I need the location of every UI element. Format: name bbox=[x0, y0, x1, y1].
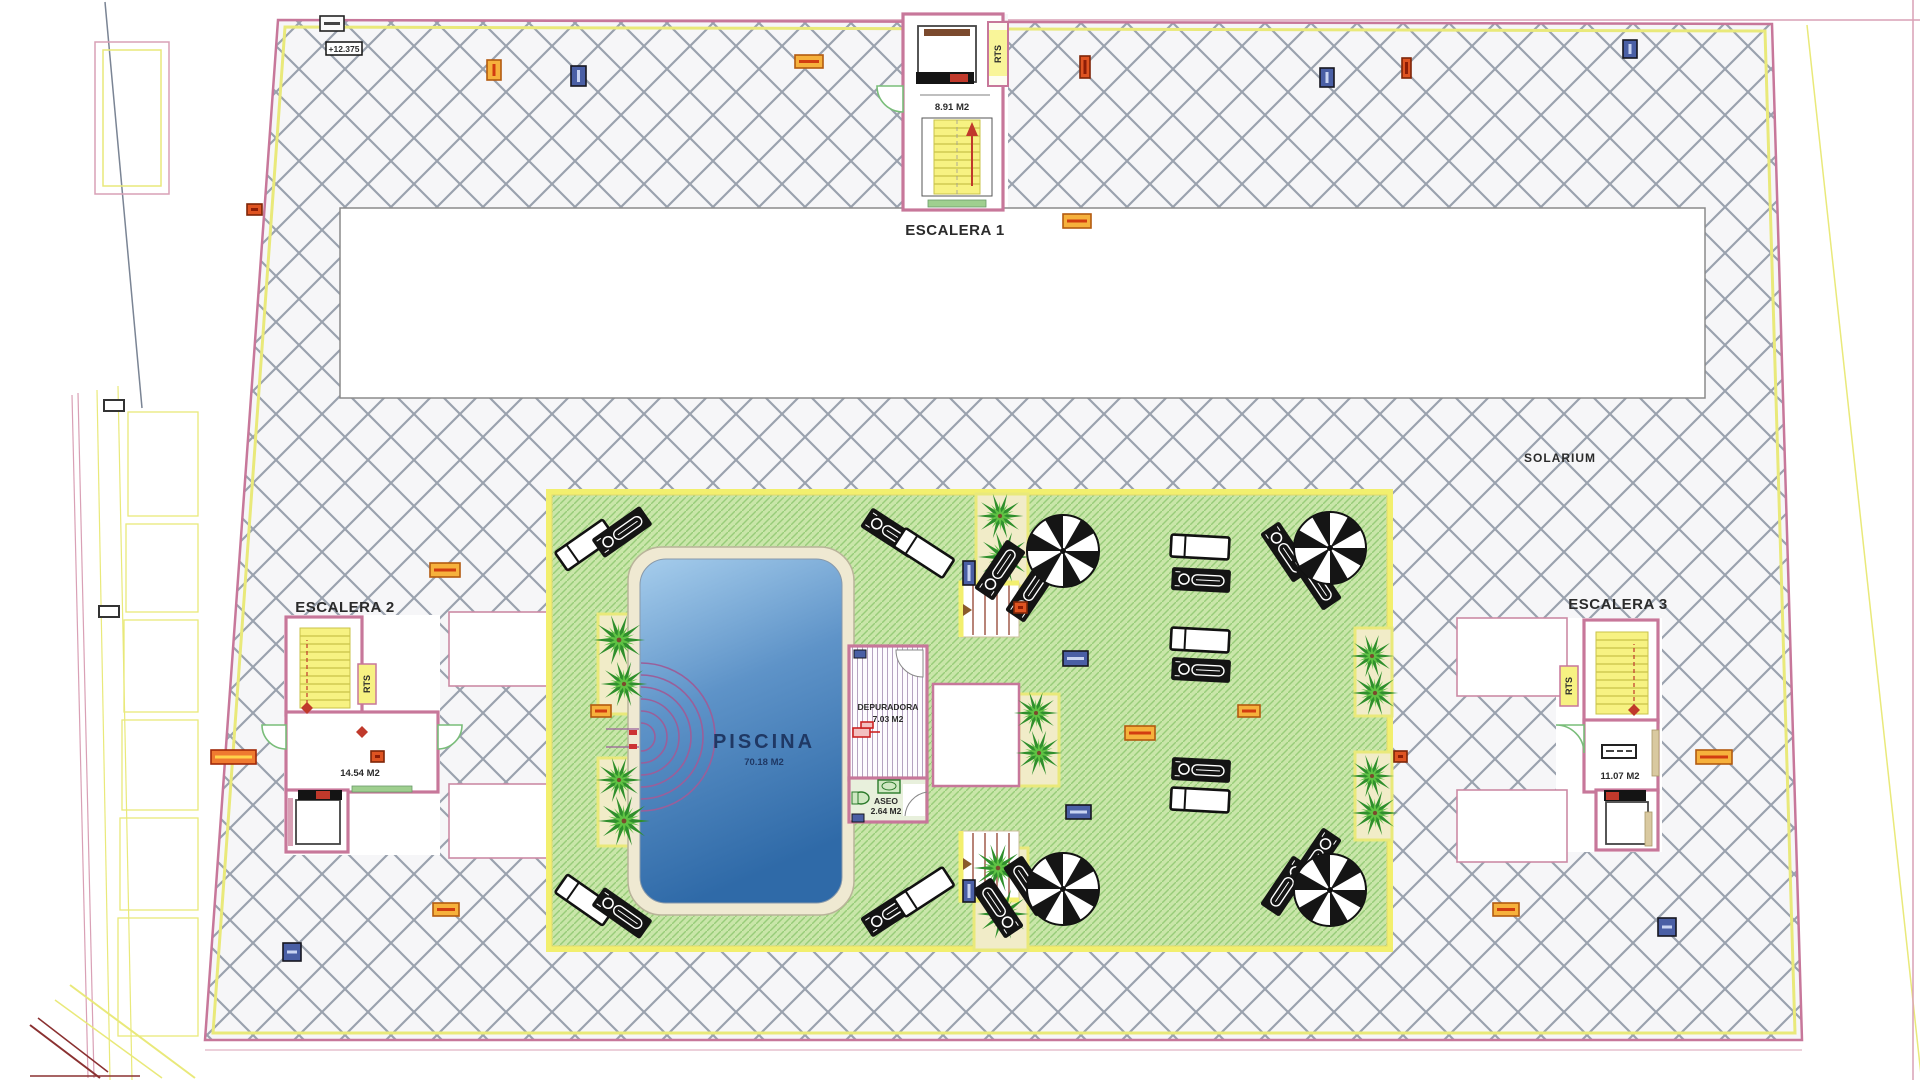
plan-marker-navy bbox=[963, 561, 975, 585]
escalera1-label: ESCALERA 1 bbox=[905, 222, 1004, 239]
plan-marker-navy bbox=[1063, 651, 1088, 666]
sun-lounger bbox=[1171, 657, 1230, 682]
neighbor-roof-cells bbox=[118, 412, 198, 1036]
esc2-area-label: 14.54 M2 bbox=[340, 768, 380, 779]
plan-marker-navy bbox=[963, 880, 975, 902]
elevation-tag: +12.375 bbox=[326, 42, 362, 55]
sun-lounger bbox=[1170, 534, 1229, 559]
sun-lounger bbox=[1171, 757, 1230, 782]
parasol-umbrella bbox=[1294, 854, 1366, 926]
aseo-area-label: 2.64 M2 bbox=[871, 806, 902, 816]
swimming-pool: PISCINA 70.18 M2 bbox=[606, 547, 854, 915]
central-roof-opening bbox=[933, 684, 1019, 786]
escalera3-label: ESCALERA 3 bbox=[1568, 596, 1667, 613]
solarium-label: SOLARIUM bbox=[1524, 451, 1596, 465]
plan-marker-dark bbox=[320, 16, 344, 31]
plan-marker-orange bbox=[1696, 750, 1732, 764]
plan-marker-orange bbox=[1238, 705, 1260, 717]
plan-marker-red bbox=[247, 204, 262, 215]
neighbor-block-outline bbox=[95, 42, 169, 194]
street-lines bbox=[30, 985, 195, 1078]
pool-area-label: 70.18 M2 bbox=[744, 757, 784, 768]
plan-marker-red bbox=[1080, 56, 1090, 78]
plan-marker-orange bbox=[1493, 903, 1519, 916]
plan-marker-orange bbox=[1125, 726, 1155, 740]
elevator-shaft bbox=[296, 800, 340, 844]
stairwell-escalera3: ESCALERA 3 RTS 11.07 M2 bbox=[1556, 596, 1668, 850]
parasol-umbrella bbox=[1027, 853, 1099, 925]
aseo-room: ASEO 2.64 M2 bbox=[849, 778, 927, 822]
building-roof-opening bbox=[340, 208, 1705, 398]
escalera2-label: ESCALERA 2 bbox=[295, 599, 394, 616]
plan-marker-navy bbox=[283, 943, 301, 961]
plan-marker-orange bbox=[430, 563, 460, 577]
depuradora-label: DEPURADORA bbox=[858, 702, 919, 712]
svg-text:+12.375: +12.375 bbox=[329, 44, 360, 54]
plan-marker-navy bbox=[571, 66, 586, 86]
sun-lounger bbox=[1170, 627, 1229, 652]
plan-marker-navy bbox=[1320, 68, 1334, 87]
esc1-area-label: 8.91 M2 bbox=[935, 102, 969, 113]
parasol-umbrella bbox=[1294, 512, 1366, 584]
plan-marker-navy bbox=[1066, 805, 1091, 819]
plan-marker-navy bbox=[1623, 40, 1637, 58]
plan-marker-redlong bbox=[211, 750, 256, 764]
plan-marker-navy bbox=[1658, 918, 1676, 936]
plan-marker-orange bbox=[487, 60, 501, 80]
esc3-door-arc bbox=[1556, 725, 1584, 753]
sun-lounger bbox=[1171, 567, 1230, 592]
plan-marker-orange bbox=[433, 903, 459, 916]
plan-marker-orange bbox=[591, 705, 611, 717]
floor-plan-canvas: ESCALERA 1 SOLARIUM bbox=[0, 0, 1920, 1080]
depuradora-room: DEPURADORA 7.03 M2 bbox=[849, 646, 927, 780]
plan-marker-red bbox=[1394, 751, 1407, 762]
parasol-umbrella bbox=[1027, 515, 1099, 587]
rts-label-1: RTS bbox=[993, 45, 1003, 63]
esc3-area-label: 11.07 M2 bbox=[1600, 771, 1639, 782]
aseo-label: ASEO bbox=[874, 796, 898, 806]
pool-ladder-icon bbox=[629, 730, 637, 735]
plan-marker-red bbox=[371, 751, 384, 762]
plan-marker-red bbox=[1014, 602, 1027, 613]
plan-marker-red bbox=[1402, 58, 1411, 78]
rts-label-2: RTS bbox=[362, 675, 372, 693]
sun-lounger bbox=[1170, 787, 1229, 812]
stairwell-escalera2: ESCALERA 2 RTS 14.54 M2 bbox=[262, 599, 462, 852]
rts-label-3: RTS bbox=[1564, 677, 1574, 695]
elevator-shaft bbox=[1606, 802, 1648, 844]
depuradora-area-label: 7.03 M2 bbox=[873, 714, 904, 724]
plan-marker-orange bbox=[1063, 214, 1091, 228]
plan-marker-orange bbox=[795, 55, 823, 68]
pool-label: PISCINA bbox=[713, 731, 815, 753]
